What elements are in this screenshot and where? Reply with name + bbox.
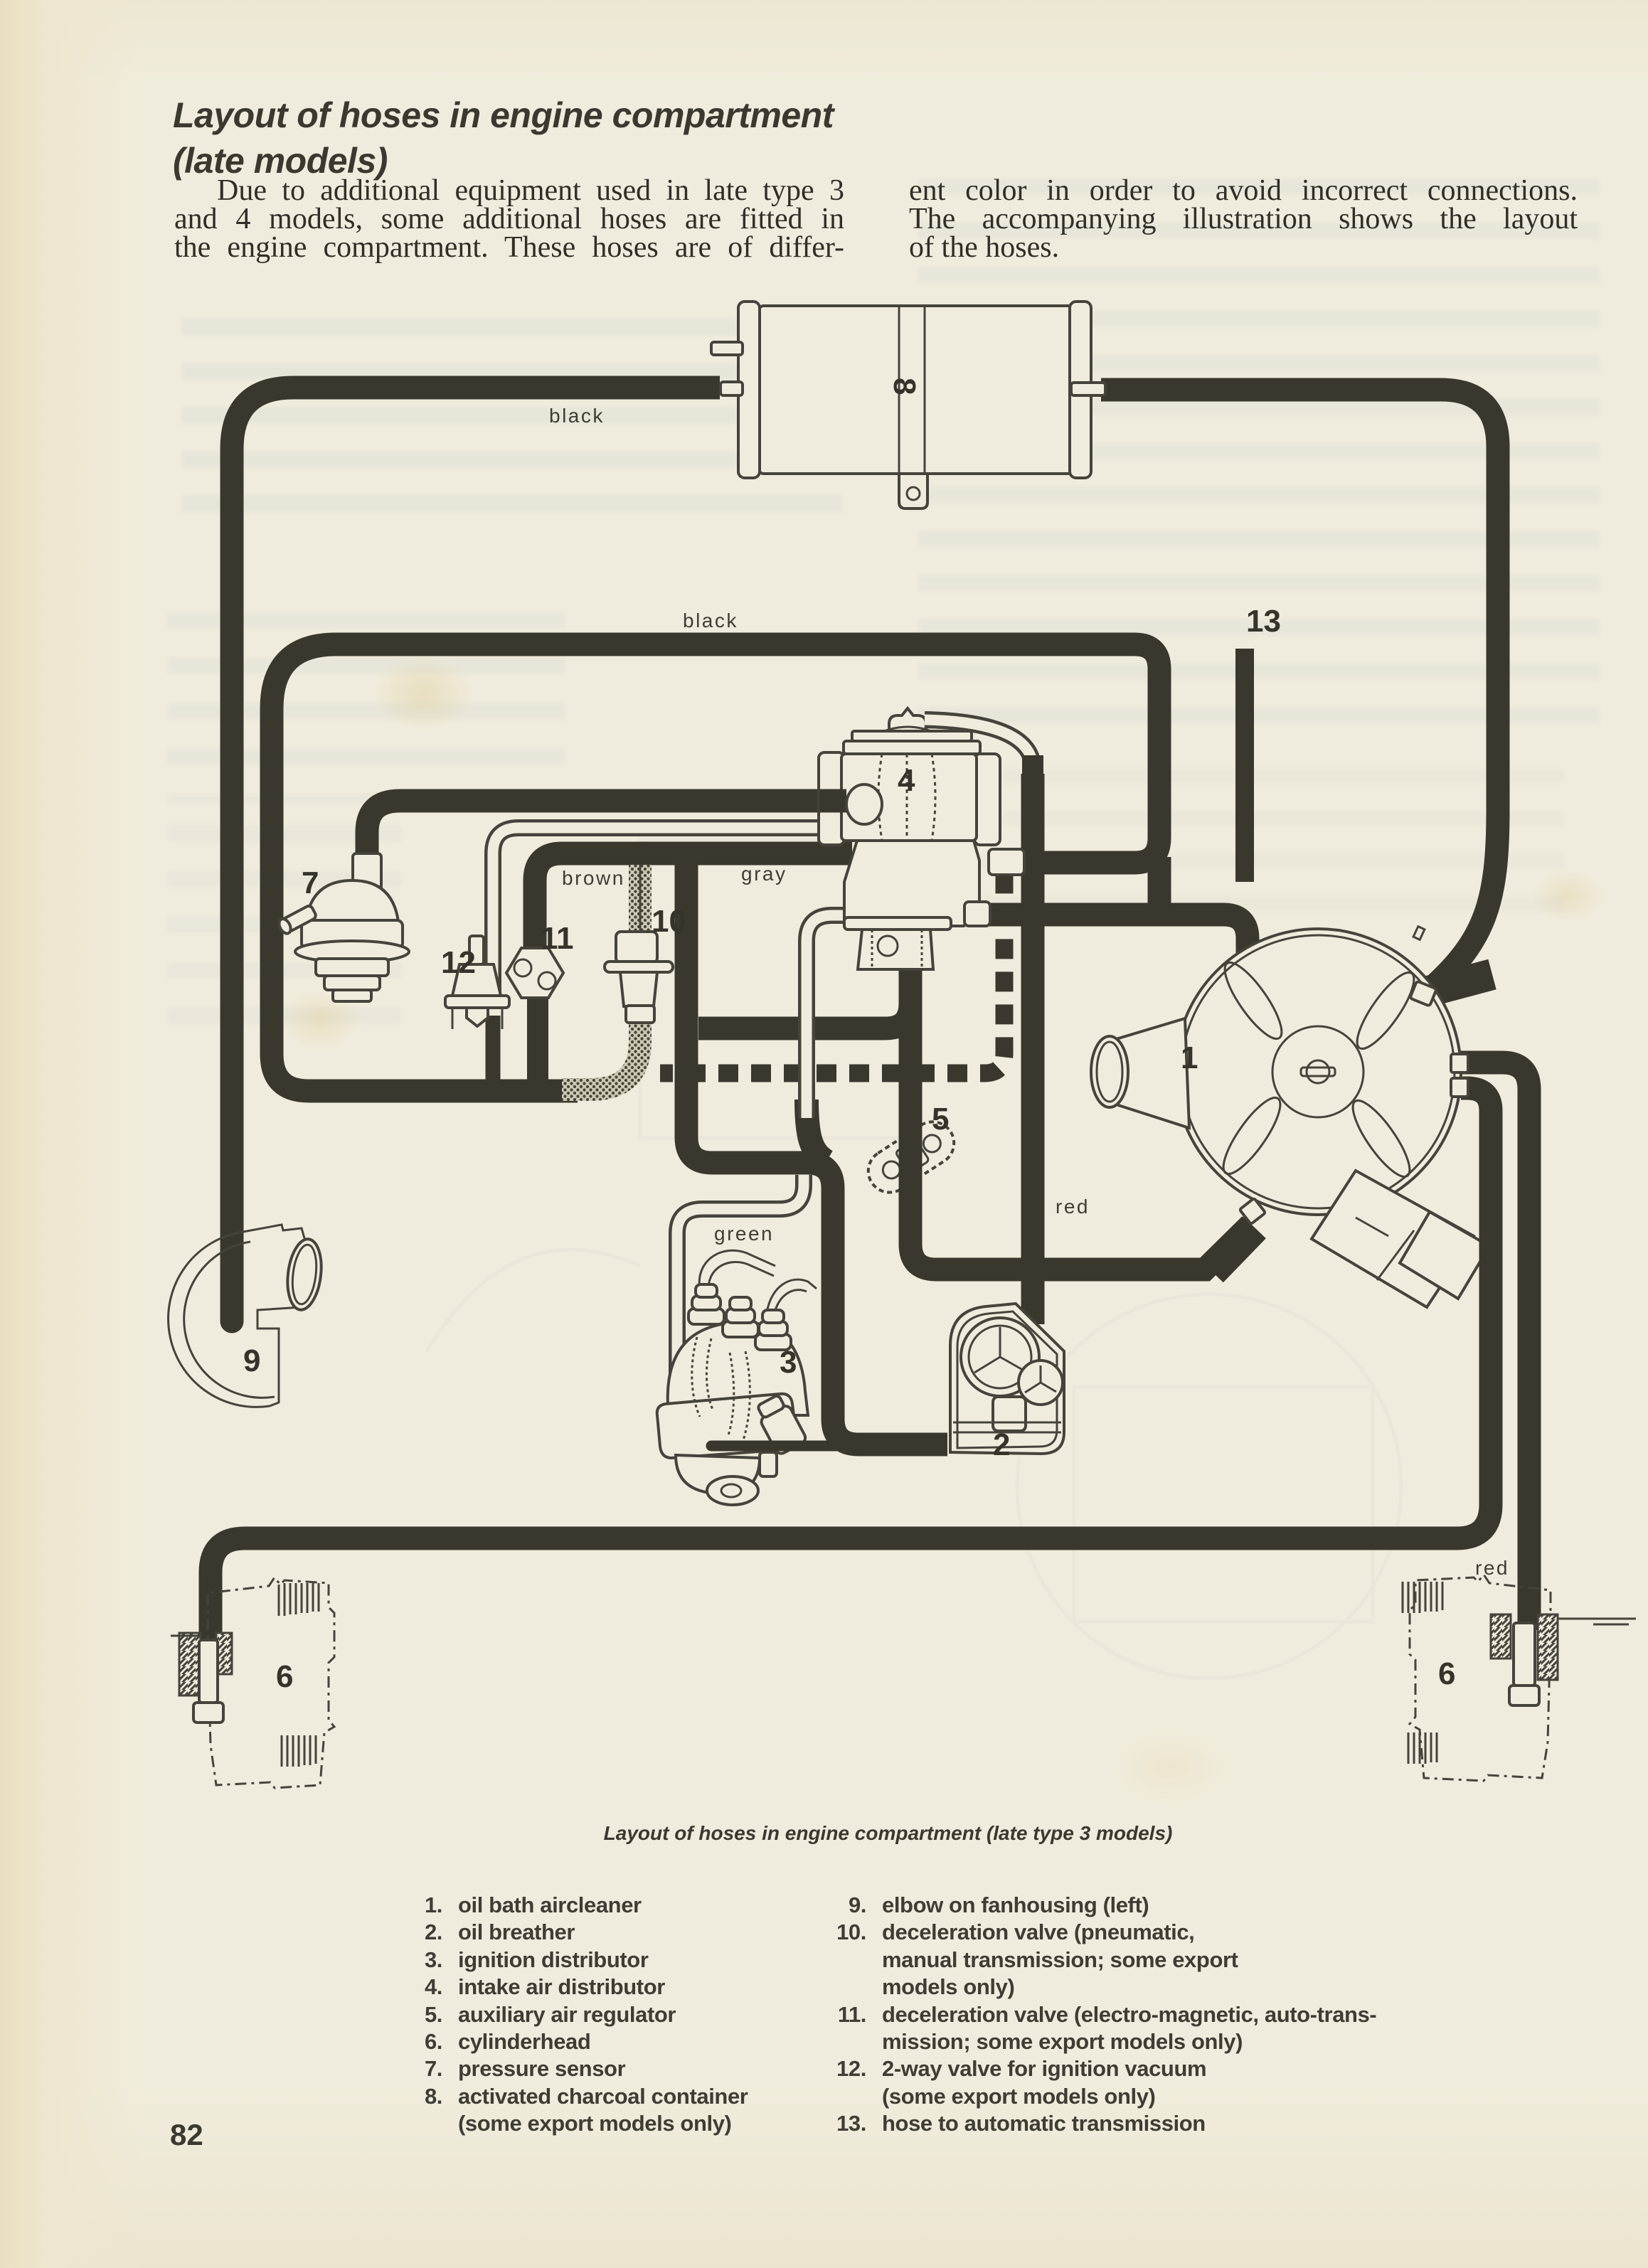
svg-text:red: red <box>1475 1557 1509 1579</box>
svg-text:5: 5 <box>932 1102 949 1136</box>
svg-text:red: red <box>1056 1196 1090 1218</box>
svg-text:black: black <box>549 405 605 427</box>
svg-text:3: 3 <box>780 1345 797 1380</box>
svg-text:11: 11 <box>541 921 574 956</box>
svg-text:2: 2 <box>993 1427 1010 1462</box>
svg-text:13: 13 <box>1246 604 1281 639</box>
svg-text:1: 1 <box>1181 1040 1198 1075</box>
svg-text:8: 8 <box>887 378 922 395</box>
svg-text:7: 7 <box>302 866 319 900</box>
svg-text:black: black <box>683 609 738 632</box>
svg-text:6: 6 <box>276 1659 293 1694</box>
svg-text:12: 12 <box>441 945 476 980</box>
svg-text:gray: gray <box>741 863 787 885</box>
svg-text:6: 6 <box>1438 1656 1455 1691</box>
svg-text:10: 10 <box>652 904 686 939</box>
svg-text:green: green <box>714 1223 774 1245</box>
svg-text:9: 9 <box>243 1343 260 1378</box>
svg-text:brown: brown <box>562 867 625 889</box>
svg-text:4: 4 <box>898 763 915 798</box>
